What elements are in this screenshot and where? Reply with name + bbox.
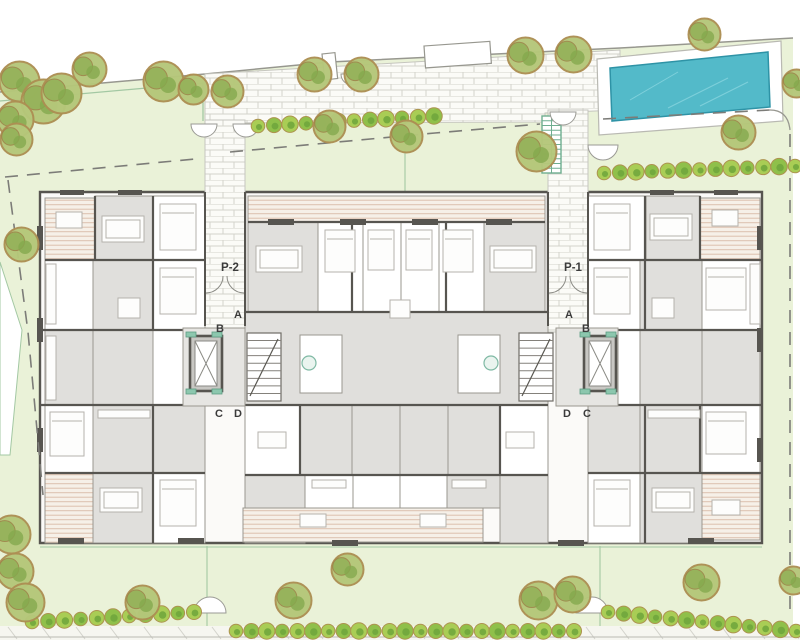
terrace [45,473,93,543]
room [300,405,352,475]
bed [160,268,196,314]
facade-opening-mark [178,538,204,544]
bed [50,412,84,456]
terrace-furniture [420,514,446,527]
elevator-door-marker [212,389,222,394]
hedge-shrub-center [418,629,424,635]
hedge-shrub-center [62,617,69,624]
tree-canopy-blob [191,86,203,98]
tree-canopy-blob [58,89,74,105]
table [258,432,286,448]
room [153,405,205,473]
hedge-shrub-center [383,116,390,123]
hedge-shrub-center [572,629,579,636]
table [118,298,140,318]
tree-canopy-blob [8,530,23,545]
facade-opening-mark [412,219,438,225]
hedge-shrub-center [762,625,769,632]
tree-canopy-blob [735,128,749,142]
room [245,312,548,405]
tree [722,116,756,150]
facade-opening-mark [340,219,366,225]
hedge-shrub-center [46,619,53,626]
tree [314,111,346,143]
tree-canopy-blob [139,598,153,612]
hedge-shrub-center [352,118,358,124]
tree-canopy-blob [698,578,712,592]
tree [508,38,544,74]
kitchen-counter [312,480,346,488]
hedge-shrub-center [557,629,563,635]
room [500,475,548,543]
tree [276,583,312,619]
tree-canopy-blob [533,147,549,163]
elevator-door-marker [580,389,590,394]
hedge-shrub-center [794,629,800,635]
hedge-shrub-center [280,629,286,635]
table [506,432,534,448]
hedge-shrub-center [713,167,720,174]
tree [345,58,379,92]
bed [594,204,630,250]
hedge-shrub-center [665,168,672,175]
hedge-shrub-center [256,124,262,130]
tree-canopy-blob [86,65,100,79]
label-entrance-left: P-2 [221,262,239,274]
kitchen-counter [46,336,56,400]
terrace-furniture [712,500,740,515]
bed [706,412,746,454]
label-right-unit-a: A [565,309,573,321]
terrace-furniture [56,212,82,228]
hedge-shrub-center [479,629,486,636]
elevator-door-marker [606,332,616,337]
table [652,298,674,318]
core-column [302,356,316,370]
hedge-shrub-center [650,169,656,175]
hedge-shrub-center [700,619,706,625]
kitchen-counter [750,264,760,324]
bed [594,480,630,526]
tree [332,554,364,586]
hedge-shrub-center [606,610,612,616]
facade-opening-mark [650,190,674,195]
tree-canopy-blob [311,70,325,84]
room [640,260,702,330]
tree-canopy-blob [224,88,237,101]
hedge-shrub-center [416,115,423,122]
facade-opening-mark [757,226,763,250]
hedge-shrub-center [731,622,738,629]
bed [706,268,746,310]
tree-canopy-blob [290,596,304,610]
facade-opening-mark [714,190,738,195]
core-column [484,356,498,370]
tree-canopy-blob [569,590,583,604]
label-left-unit-c: C [215,408,223,420]
tree [684,565,720,601]
bed [443,230,473,272]
kitchen-counter [648,410,700,418]
tree-canopy-blob [160,77,176,93]
hedge-shrub-center [747,624,753,630]
facade-opening-mark [757,328,763,352]
table [390,300,410,318]
hedge-shrub-center [272,123,279,130]
hedge-shrub-center [715,621,722,628]
bed [406,230,432,270]
hedge-shrub-center [295,629,302,636]
terrace [700,198,760,260]
kitchen-counter [452,480,486,488]
hedge-shrub-center [234,629,240,635]
hedge-shrub-center [510,629,516,635]
facade-opening-mark [688,538,714,544]
tree [556,37,592,73]
room [400,475,447,508]
hedge-shrub-center [264,628,271,635]
tree [212,76,244,108]
bed [160,204,196,250]
tree-canopy-blob [403,133,416,146]
tree-canopy-blob [22,598,37,613]
elevator-door-marker [186,389,196,394]
room [93,330,153,405]
kitchen-counter [98,410,150,418]
hedge-shrub-center [778,627,785,634]
tree-canopy-blob [522,51,536,65]
terrace-furniture [300,514,326,527]
tree-canopy-blob [358,70,372,84]
hedge-shrub-center [745,166,751,172]
hedge-shrub-center [304,121,310,127]
tree [780,567,800,595]
hedge-shrub-center [176,611,182,617]
hedge-shrub-center [110,614,117,621]
room [93,260,153,330]
tree-canopy-blob [12,567,26,581]
hedge-shrub-center [633,169,640,176]
tree [517,132,557,172]
hedge-shrub-center [159,611,166,618]
hedge-shrub-center [448,628,455,635]
label-right-unit-d: D [563,408,571,420]
elevator-door-marker [186,332,196,337]
bed [594,268,630,314]
hedge-shrub-center [249,629,256,636]
tree [298,58,332,92]
hedge-shrub-center [729,166,736,173]
room [352,405,400,475]
site-plan: P-2P-1ABCDABDC [0,0,800,640]
facade-opening-mark [332,540,358,546]
hedge-shrub-center [402,628,409,635]
tree [126,586,160,620]
facade-opening-mark [558,540,584,546]
terrace [45,198,95,260]
hedge-shrub-center [310,628,317,635]
facade-opening-mark [37,318,43,342]
hedge-shrub-center [356,628,363,635]
hedge-shrub-center [433,629,440,636]
hedge-shrub-center [793,164,799,170]
terrace [243,508,483,542]
facade-opening-mark [757,438,763,462]
bed [325,230,355,272]
tree [391,121,423,153]
room [640,330,702,405]
label-left-unit-b: B [216,323,224,335]
hedge-shrub-center [602,171,608,177]
hedge-shrub-center [464,629,470,635]
tree [5,228,39,262]
hedge-shrub-center [387,629,394,636]
hedge-shrub-center [668,616,675,623]
hedge-shrub-center [637,612,644,619]
hedge-shrub-center [621,611,628,618]
terrace [248,196,545,222]
hedge-shrub-center [618,170,625,177]
hedge-shrub-center [684,617,691,624]
hedge-shrub-center [653,615,659,621]
boundary-gate [424,41,491,68]
facade-opening-mark [118,190,142,195]
tree [520,582,558,620]
tree-canopy-blob [18,240,32,254]
hedge-shrub-center [494,628,501,635]
hedge-shrub-center [776,164,783,171]
facade-opening-mark [486,219,512,225]
room [588,405,640,473]
hedge-shrub-center [541,628,548,635]
tree-canopy-blob [344,566,357,579]
facade-opening-mark [58,538,84,544]
hedge-shrub-center [341,629,348,636]
hedge-shrub-center [431,113,438,120]
hedge-shrub-center [697,167,703,173]
tree [689,19,721,51]
tree-canopy-blob [701,31,714,44]
room [702,330,760,405]
tree [1,124,33,156]
hedge-shrub-center [681,167,688,174]
hedge-shrub-center [94,616,101,623]
elevator-door-marker [606,389,616,394]
tree [0,516,31,554]
tree [144,62,184,102]
hedge-shrub-center [326,629,332,635]
tree-canopy-blob [13,136,26,149]
site-plan-svg: P-2P-1ABCDABDC [0,0,800,640]
hedge-shrub-center [372,629,378,635]
kitchen-counter [46,264,56,324]
label-left-unit-a: A [234,309,242,321]
terrace-furniture [712,210,738,226]
hedge-shrub-center [79,617,85,623]
label-right-unit-b: B [582,323,590,335]
room [448,405,500,475]
label-entrance-right: P-1 [564,262,583,274]
label-right-unit-c: C [583,408,591,420]
hedge-shrub-center [761,165,768,172]
facade-opening-mark [268,219,294,225]
hedge-shrub-center [192,610,199,617]
tree-canopy-blob [570,50,584,64]
hedge-shrub-center [526,629,533,636]
hedge-shrub-center [287,121,294,128]
tree [555,577,591,613]
bed [368,230,394,270]
tree [179,75,209,105]
room [353,475,400,508]
tree [7,584,45,622]
tree-canopy-blob [326,123,339,136]
label-left-unit-d: D [234,408,242,420]
bed [160,480,196,526]
room [400,405,448,475]
hedge-shrub-center [368,117,375,124]
facade-opening-mark [60,190,84,195]
tree-canopy-blob [535,596,550,611]
tree [42,74,82,114]
